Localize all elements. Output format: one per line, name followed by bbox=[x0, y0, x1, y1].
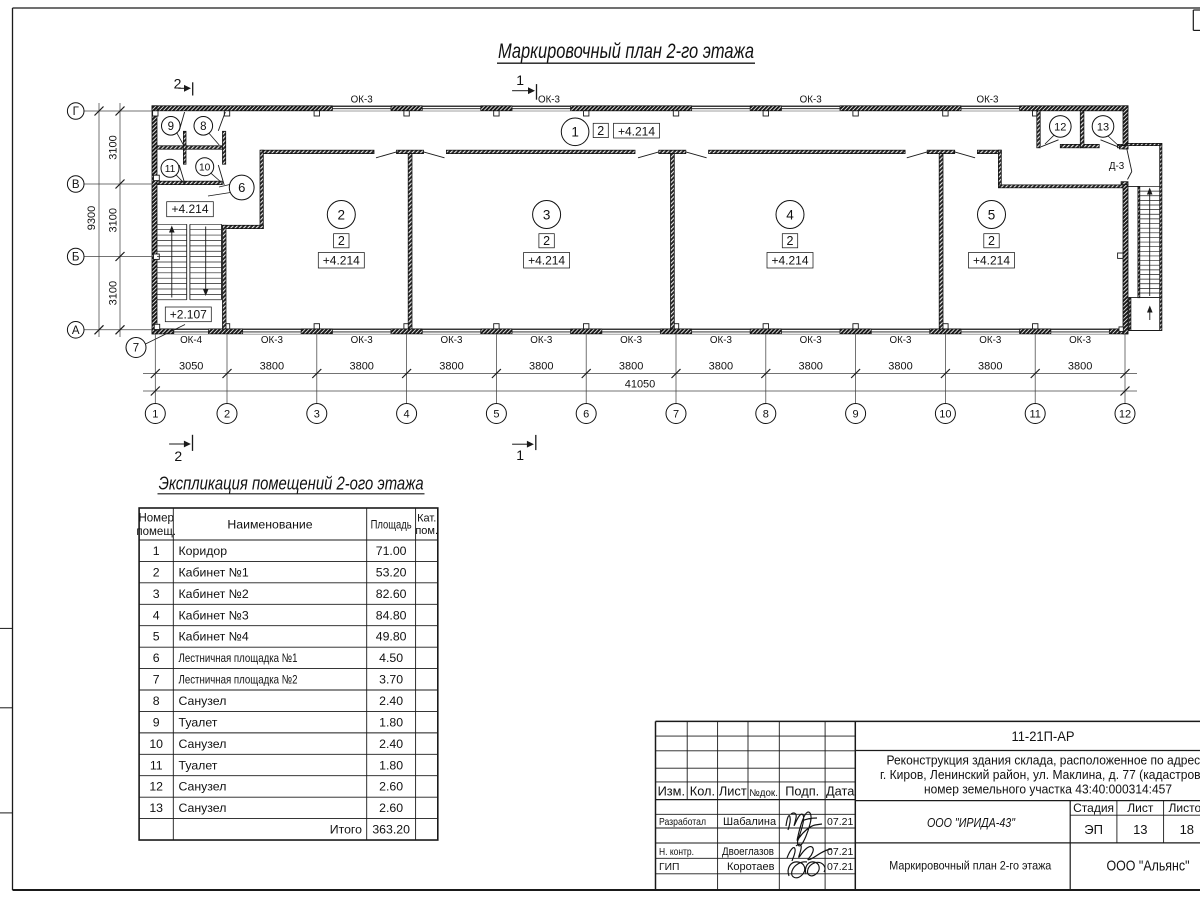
svg-text:2: 2 bbox=[338, 207, 346, 222]
svg-text:2: 2 bbox=[988, 234, 995, 248]
svg-text:Лестничная площадка №1: Лестничная площадка №1 bbox=[179, 651, 298, 665]
svg-text:3800: 3800 bbox=[439, 360, 463, 372]
svg-text:ОК-3: ОК-3 bbox=[538, 94, 561, 105]
svg-text:ОК-3: ОК-3 bbox=[979, 335, 1002, 346]
svg-text:07.21: 07.21 bbox=[827, 861, 853, 873]
svg-text:Экспликация помещений 2-ого эт: Экспликация помещений 2-ого этажа bbox=[159, 473, 424, 494]
svg-text:Н. контр.: Н. контр. bbox=[659, 847, 694, 858]
svg-text:8: 8 bbox=[153, 694, 160, 708]
svg-text:1.80: 1.80 bbox=[379, 758, 403, 772]
svg-text:1.80: 1.80 bbox=[379, 715, 403, 729]
svg-text:г. Киров, Ленинский район, ул.: г. Киров, Ленинский район, ул. Маклина, … bbox=[880, 768, 1200, 782]
svg-text:Итого: Итого bbox=[330, 823, 362, 837]
svg-text:82.60: 82.60 bbox=[376, 587, 407, 601]
svg-text:363.20: 363.20 bbox=[372, 823, 410, 837]
svg-text:41050: 41050 bbox=[625, 378, 656, 390]
svg-text:1: 1 bbox=[516, 72, 524, 88]
svg-text:Лестничная площадка №2: Лестничная площадка №2 bbox=[179, 673, 298, 687]
svg-text:номер земельного участка 43:40: номер земельного участка 43:40:000314:45… bbox=[924, 783, 1172, 797]
svg-text:Санузел: Санузел bbox=[179, 780, 227, 794]
svg-text:6: 6 bbox=[583, 409, 589, 421]
svg-text:3800: 3800 bbox=[709, 360, 733, 372]
svg-text:ОК-3: ОК-3 bbox=[800, 94, 823, 105]
svg-text:4.50: 4.50 bbox=[379, 651, 403, 665]
svg-text:10: 10 bbox=[199, 163, 211, 174]
svg-text:Шабалина: Шабалина bbox=[723, 816, 777, 828]
svg-text:71.00: 71.00 bbox=[376, 544, 407, 558]
svg-text:12: 12 bbox=[1119, 409, 1131, 421]
svg-text:11: 11 bbox=[150, 758, 163, 772]
svg-text:Подп.: Подп. bbox=[785, 784, 819, 799]
svg-text:3800: 3800 bbox=[1068, 360, 1092, 372]
svg-text:3100: 3100 bbox=[108, 135, 120, 159]
svg-text:Дата: Дата bbox=[826, 784, 855, 799]
svg-text:ОК-3: ОК-3 bbox=[800, 335, 823, 346]
svg-text:Санузел: Санузел bbox=[179, 737, 227, 751]
svg-text:Стадия: Стадия bbox=[1073, 801, 1114, 815]
svg-text:Изм.: Изм. bbox=[658, 784, 685, 799]
svg-text:3800: 3800 bbox=[260, 360, 284, 372]
svg-text:ОК-3: ОК-3 bbox=[710, 335, 733, 346]
svg-text:4: 4 bbox=[153, 608, 160, 622]
svg-text:Разработал: Разработал bbox=[659, 816, 706, 828]
svg-text:Кабинет №3: Кабинет №3 bbox=[179, 608, 249, 622]
svg-text:4: 4 bbox=[786, 207, 794, 222]
svg-text:1: 1 bbox=[153, 544, 160, 558]
svg-text:6: 6 bbox=[238, 180, 245, 195]
svg-text:Кабинет №2: Кабинет №2 bbox=[179, 587, 249, 601]
svg-text:+4.214: +4.214 bbox=[973, 253, 1010, 267]
svg-text:Двоеглазов: Двоеглазов bbox=[722, 846, 774, 858]
svg-text:пом.: пом. bbox=[415, 525, 438, 537]
svg-text:3: 3 bbox=[543, 207, 551, 222]
svg-text:3100: 3100 bbox=[108, 281, 120, 305]
svg-text:Кабинет №1: Кабинет №1 bbox=[179, 565, 249, 579]
svg-text:11-21П-АР: 11-21П-АР bbox=[1012, 729, 1075, 744]
svg-text:2.40: 2.40 bbox=[379, 737, 403, 751]
svg-text:7: 7 bbox=[673, 409, 679, 421]
svg-text:В: В bbox=[72, 179, 80, 191]
svg-text:Реконструкция здания склада, р: Реконструкция здания склада, расположенн… bbox=[887, 754, 1200, 768]
svg-text:49.80: 49.80 bbox=[376, 630, 407, 644]
svg-text:1: 1 bbox=[571, 125, 579, 140]
svg-text:07.21: 07.21 bbox=[827, 816, 853, 828]
svg-text:11: 11 bbox=[165, 164, 176, 175]
svg-text:07.21: 07.21 bbox=[827, 846, 853, 858]
svg-text:53.20: 53.20 bbox=[376, 565, 407, 579]
svg-text:3: 3 bbox=[314, 409, 320, 421]
svg-text:помещ.: помещ. bbox=[136, 526, 176, 538]
svg-text:Санузел: Санузел bbox=[179, 801, 227, 815]
svg-text:Коротаев: Коротаев bbox=[727, 861, 775, 873]
svg-text:Кат.: Кат. bbox=[417, 513, 436, 525]
svg-text:3800: 3800 bbox=[349, 360, 373, 372]
svg-text:3800: 3800 bbox=[978, 360, 1002, 372]
svg-text:Туалет: Туалет bbox=[179, 758, 218, 772]
svg-text:9: 9 bbox=[168, 121, 174, 133]
svg-text:Д-3: Д-3 bbox=[1109, 161, 1125, 172]
svg-text:2: 2 bbox=[338, 234, 345, 248]
svg-text:ОК-3: ОК-3 bbox=[1069, 335, 1092, 346]
svg-text:2: 2 bbox=[153, 565, 160, 579]
svg-text:Кабинет №4: Кабинет №4 bbox=[179, 630, 249, 644]
svg-text:9300: 9300 bbox=[86, 206, 98, 230]
svg-text:ООО "Альянс": ООО "Альянс" bbox=[1107, 859, 1190, 875]
svg-text:Г: Г bbox=[73, 106, 80, 118]
svg-text:4: 4 bbox=[404, 409, 410, 421]
svg-text:9: 9 bbox=[853, 409, 859, 421]
svg-text:11: 11 bbox=[1029, 409, 1040, 421]
svg-text:Маркировочный план 2-го этажа: Маркировочный план 2-го этажа bbox=[889, 859, 1051, 873]
svg-text:13: 13 bbox=[1133, 822, 1147, 837]
svg-text:3800: 3800 bbox=[888, 360, 912, 372]
svg-text:Кол.: Кол. bbox=[690, 784, 715, 799]
svg-text:7: 7 bbox=[133, 343, 139, 355]
svg-text:8: 8 bbox=[200, 121, 206, 133]
svg-text:5: 5 bbox=[153, 630, 160, 644]
svg-text:ОК-3: ОК-3 bbox=[976, 94, 999, 105]
svg-text:Номер: Номер bbox=[138, 513, 173, 525]
svg-text:+4.214: +4.214 bbox=[528, 253, 565, 267]
svg-text:№док.: №док. bbox=[749, 788, 778, 799]
svg-text:Б: Б bbox=[72, 252, 80, 264]
svg-text:2: 2 bbox=[597, 124, 604, 138]
svg-text:2: 2 bbox=[174, 448, 182, 464]
svg-text:2: 2 bbox=[224, 409, 230, 421]
svg-text:ЭП: ЭП bbox=[1084, 822, 1103, 837]
svg-text:5: 5 bbox=[988, 207, 996, 222]
svg-text:13: 13 bbox=[149, 801, 163, 815]
svg-text:5: 5 bbox=[493, 409, 499, 421]
svg-text:+4.214: +4.214 bbox=[171, 202, 208, 216]
svg-text:7: 7 bbox=[153, 673, 160, 687]
svg-text:ОК-4: ОК-4 bbox=[180, 335, 203, 346]
svg-text:2: 2 bbox=[543, 234, 550, 248]
svg-text:ОК-3: ОК-3 bbox=[530, 335, 553, 346]
svg-text:1: 1 bbox=[516, 447, 524, 463]
svg-text:Лист: Лист bbox=[719, 784, 747, 799]
svg-text:3: 3 bbox=[153, 587, 160, 601]
svg-text:Наименование: Наименование bbox=[227, 518, 312, 532]
svg-text:3.70: 3.70 bbox=[379, 673, 403, 687]
svg-text:3050: 3050 bbox=[179, 360, 203, 372]
svg-text:Туалет: Туалет bbox=[179, 715, 218, 729]
svg-text:8: 8 bbox=[763, 409, 769, 421]
svg-text:+4.214: +4.214 bbox=[771, 253, 808, 267]
svg-text:Листов: Листов bbox=[1169, 801, 1200, 815]
svg-text:12: 12 bbox=[1054, 122, 1066, 134]
svg-text:3800: 3800 bbox=[619, 360, 643, 372]
svg-text:ОК-3: ОК-3 bbox=[889, 335, 912, 346]
svg-text:13: 13 bbox=[1097, 122, 1109, 134]
svg-text:2: 2 bbox=[787, 234, 794, 248]
svg-text:+2.107: +2.107 bbox=[170, 308, 207, 322]
svg-text:Санузел: Санузел bbox=[179, 694, 227, 708]
svg-text:ОК-3: ОК-3 bbox=[620, 335, 643, 346]
svg-text:2.60: 2.60 bbox=[379, 780, 403, 794]
svg-text:10: 10 bbox=[939, 409, 951, 421]
svg-text:А: А bbox=[72, 325, 80, 337]
svg-text:+4.214: +4.214 bbox=[618, 124, 655, 138]
svg-text:10: 10 bbox=[149, 737, 163, 751]
svg-text:Маркировочный план 2-го этажа: Маркировочный план 2-го этажа bbox=[498, 40, 754, 63]
svg-text:Площадь: Площадь bbox=[371, 518, 412, 532]
svg-text:2: 2 bbox=[174, 76, 182, 92]
svg-text:9: 9 bbox=[153, 715, 160, 729]
svg-text:6: 6 bbox=[153, 651, 160, 665]
svg-text:Коридор: Коридор bbox=[179, 544, 228, 558]
svg-text:12: 12 bbox=[149, 780, 163, 794]
svg-text:ОК-3: ОК-3 bbox=[440, 335, 463, 346]
svg-text:ГИП: ГИП bbox=[659, 862, 679, 873]
svg-text:Лист: Лист bbox=[1127, 801, 1154, 815]
svg-text:ОК-3: ОК-3 bbox=[351, 335, 374, 346]
svg-text:84.80: 84.80 bbox=[376, 608, 407, 622]
svg-text:2.60: 2.60 bbox=[379, 801, 403, 815]
svg-text:2.40: 2.40 bbox=[379, 694, 403, 708]
svg-text:ОК-3: ОК-3 bbox=[261, 335, 284, 346]
svg-text:18: 18 bbox=[1180, 822, 1194, 837]
svg-text:3800: 3800 bbox=[529, 360, 553, 372]
svg-text:3100: 3100 bbox=[108, 208, 120, 232]
svg-text:ООО "ИРИДА-43": ООО "ИРИДА-43" bbox=[927, 815, 1016, 830]
svg-text:1: 1 bbox=[152, 409, 158, 421]
svg-text:+4.214: +4.214 bbox=[323, 253, 360, 267]
svg-text:ОК-3: ОК-3 bbox=[351, 94, 374, 105]
svg-text:3800: 3800 bbox=[798, 360, 822, 372]
